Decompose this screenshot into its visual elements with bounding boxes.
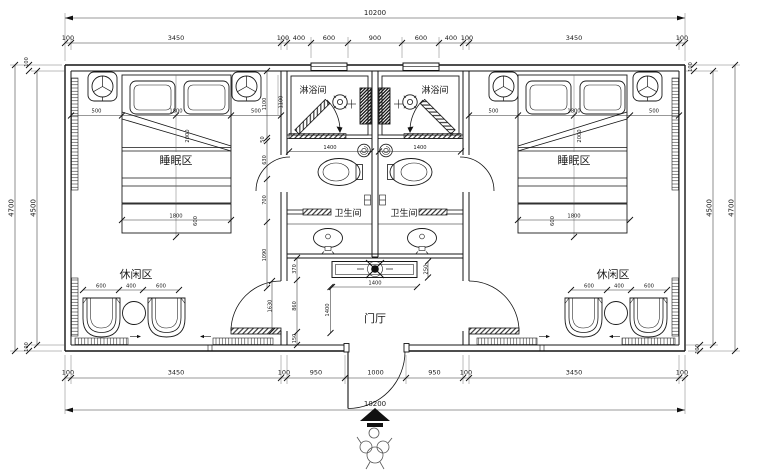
dim-hall-chain-1: 860: [292, 301, 298, 311]
dim-shower-r: 1400: [413, 145, 426, 151]
dim-right-outer: 4700: [728, 199, 736, 217]
dim-overall-top: 10200: [364, 9, 386, 17]
room-door-left: [231, 281, 281, 334]
armchair: [83, 298, 120, 337]
dim-top-9: 3450: [566, 34, 583, 42]
dim-nightstand: 1100: [279, 96, 285, 109]
dim-bench-r-depth: 600: [550, 216, 556, 226]
dim-wall-100-lb: 100: [24, 342, 30, 352]
dim-console-width: 1400: [368, 281, 381, 287]
wc-door-right: [419, 209, 447, 215]
dim-top-2: 100: [277, 34, 289, 42]
entrance-marker: [357, 408, 392, 469]
room-label-shower-left: 淋浴间: [299, 84, 326, 96]
bath-door-swing-right: [460, 157, 494, 191]
dim-hall-depth: 1400: [325, 303, 331, 316]
dim-bath-chain-2: 630: [262, 155, 268, 165]
room-label-toilet-right: 卫生间: [390, 207, 417, 219]
pillow: [184, 81, 229, 114]
window-top-left: [311, 63, 347, 71]
dim-bot-5: 950: [428, 369, 440, 377]
leisure-set-left: [83, 298, 185, 337]
dim-seat-l-0: 600: [96, 284, 106, 290]
dim-top-6: 600: [415, 34, 427, 42]
shower-door-right: [420, 99, 455, 134]
nightstand-lamp-icon: [633, 72, 662, 101]
dim-bath-chain-3: 700: [262, 195, 268, 205]
dim-door-width: 1630: [268, 300, 274, 313]
dim-wall-100-rb: 100: [695, 344, 701, 354]
dim-bot-1: 3450: [168, 369, 185, 377]
pillow: [130, 81, 175, 114]
dim-top-7: 400: [445, 34, 457, 42]
dim-bath-chain-4: 1090: [262, 249, 268, 262]
dim-wall-100-lt: 100: [24, 57, 30, 67]
floor-plan-drawing: 10200 100 3450 100 400 600 900 600 400 1…: [0, 0, 760, 473]
dim-bot-2: 100: [278, 369, 290, 377]
room-label-toilet-left: 卫生间: [334, 207, 361, 219]
dim-hall-chain-2: 150: [292, 334, 298, 344]
dim-top-5: 900: [369, 34, 381, 42]
shower-head-icon: [403, 95, 417, 109]
nightstand-lamp-icon: [88, 72, 117, 101]
round-table: [123, 302, 146, 325]
dim-wall-100-rt: 100: [688, 62, 694, 72]
wc-door-left: [303, 209, 331, 215]
room-label-sleeping-left: 睡眠区: [160, 154, 193, 167]
service-duct-right: [379, 88, 390, 124]
room-door-right: [469, 281, 519, 334]
dim-shower-l: 1400: [323, 145, 336, 151]
floor-plan-canvas: 10200 100 3450 100 400 600 900 600 400 1…: [0, 0, 760, 473]
dim-bench-l: 1800: [169, 214, 182, 220]
shower-threshold: [404, 134, 461, 139]
dim-top-8: 100: [461, 34, 473, 42]
sink-right: [408, 229, 437, 254]
dim-bench-r: 1800: [567, 214, 580, 220]
dim-overall-bottom: 10200: [364, 400, 386, 408]
shower-threshold: [289, 134, 346, 139]
armchair: [565, 298, 602, 337]
shower-head-icon: [333, 95, 347, 109]
toilet-paper-holder-icon: [358, 144, 371, 157]
dim-left-inner: 4500: [30, 199, 38, 217]
dim-seat-l-1: 400: [126, 284, 136, 290]
pillow: [580, 81, 625, 114]
dim-bot-6: 100: [460, 369, 472, 377]
dim-top-4: 600: [323, 34, 335, 42]
dim-bot-3: 950: [310, 369, 322, 377]
dim-bot-4: 1000: [367, 369, 384, 377]
dim-top-3: 400: [293, 34, 305, 42]
armchair: [630, 298, 667, 337]
dim-bath-chain-0: 1100: [262, 98, 268, 111]
dim-bed-r-2: 500: [649, 109, 659, 115]
towel-hook-icons: [347, 100, 403, 109]
armchair: [148, 298, 185, 337]
room-label-hall: 门厅: [364, 311, 386, 325]
dim-seat-r-1: 400: [614, 284, 624, 290]
toilet-left: [318, 159, 363, 186]
leisure-set-right: [565, 298, 667, 337]
dim-bot-0: 100: [62, 369, 74, 377]
dim-right-inner: 4500: [706, 199, 714, 217]
room-labels: 睡眠区 睡眠区 休闲区 休闲区 淋浴间 淋浴间 卫生间 卫生间 门厅: [120, 84, 630, 325]
dim-bot-7: 3450: [566, 369, 583, 377]
toilet-paper-holder-icon: [380, 144, 393, 157]
dim-bed-l-0: 500: [92, 109, 102, 115]
round-table: [605, 302, 628, 325]
pillow: [526, 81, 571, 114]
dim-bed-l-2: 500: [251, 109, 261, 115]
dimension-lines: [10, 13, 740, 414]
room-label-leisure-left: 休闲区: [120, 267, 153, 281]
dim-bench-l-depth: 600: [193, 216, 199, 226]
room-label-sleeping-right: 睡眠区: [558, 154, 591, 167]
wall-fixture-icons: [365, 195, 386, 205]
toilet-right: [388, 159, 433, 186]
dim-bed-r-1: 1800: [567, 109, 580, 115]
service-duct-left: [360, 88, 371, 124]
dim-bed-l-length: 2000: [185, 129, 191, 142]
dim-bot-8: 100: [676, 369, 688, 377]
nightstand-lamp-icon: [489, 72, 518, 101]
dim-seat-r-2: 600: [644, 284, 654, 290]
dim-seat-l-2: 600: [156, 284, 166, 290]
shower-door-left: [295, 99, 330, 134]
dim-left-outer: 4700: [8, 199, 16, 217]
dim-bed-r-length: 2000: [577, 129, 583, 142]
person-figure: [357, 428, 392, 469]
room-label-leisure-right: 休闲区: [597, 267, 630, 281]
dim-bed-r-0: 500: [489, 109, 499, 115]
dim-top-10: 100: [676, 34, 688, 42]
dim-seat-r-0: 600: [584, 284, 594, 290]
dim-top-1: 3450: [168, 34, 185, 42]
sink-left: [314, 229, 343, 254]
dim-hall-chain-0: 370: [292, 264, 298, 274]
room-label-shower-right: 淋浴间: [421, 84, 448, 96]
dim-console-depth: 250: [424, 265, 430, 275]
nightstand-lamp-icon: [232, 72, 261, 101]
dim-bed-l-1: 1800: [169, 109, 182, 115]
window-top-right: [403, 63, 439, 71]
dim-bath-chain-1: 50: [260, 136, 266, 142]
dim-top-0: 100: [62, 34, 74, 42]
